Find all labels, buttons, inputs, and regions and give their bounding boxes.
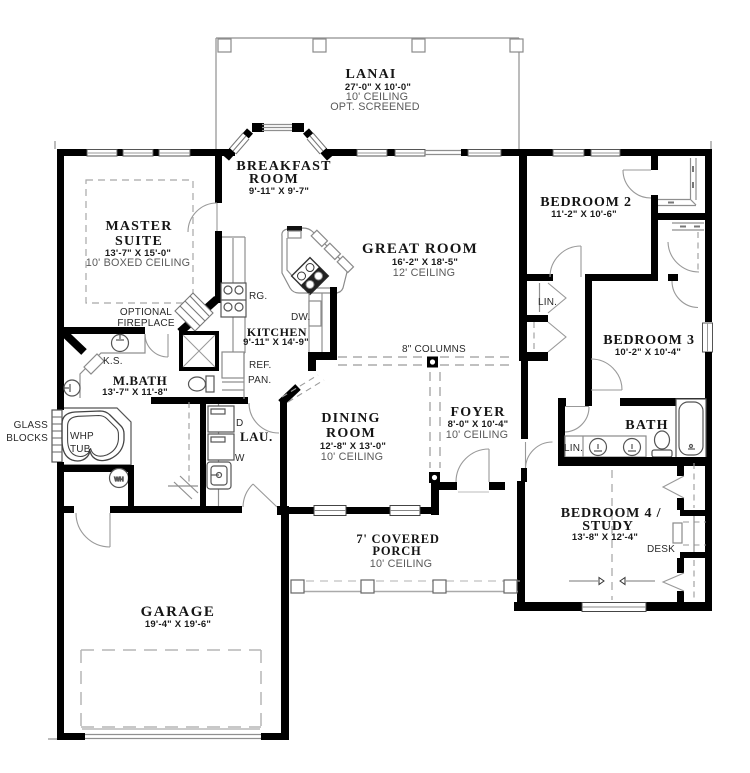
svg-text:LIN.: LIN.: [538, 297, 557, 308]
svg-text:ROOM: ROOM: [326, 426, 376, 441]
svg-text:D: D: [236, 418, 243, 429]
svg-text:GLASS: GLASS: [14, 420, 48, 431]
svg-text:BLOCKS: BLOCKS: [6, 433, 48, 444]
svg-text:13'-7" X 11'-8": 13'-7" X 11'-8": [102, 387, 168, 398]
svg-text:9'-11" X 9'-7": 9'-11" X 9'-7": [249, 186, 309, 197]
svg-text:M.BATH: M.BATH: [113, 373, 167, 388]
svg-text:19'-4" X 19'-6": 19'-4" X 19'-6": [145, 619, 211, 630]
svg-text:PAN.: PAN.: [248, 375, 271, 386]
svg-text:ROOM: ROOM: [249, 172, 299, 187]
svg-text:K.S.: K.S.: [103, 356, 123, 367]
svg-text:SUITE: SUITE: [115, 234, 163, 249]
svg-text:RG.: RG.: [249, 291, 267, 302]
svg-text:13'-8" X 12'-4": 13'-8" X 12'-4": [572, 532, 638, 543]
svg-text:BEDROOM 2: BEDROOM 2: [540, 195, 632, 210]
svg-text:GREAT ROOM: GREAT ROOM: [362, 241, 478, 257]
svg-text:OPT. SCREENED: OPT. SCREENED: [330, 101, 420, 113]
svg-text:BATH: BATH: [625, 418, 668, 433]
svg-text:BEDROOM 3: BEDROOM 3: [603, 333, 695, 348]
svg-text:10' CEILING: 10' CEILING: [370, 558, 432, 570]
svg-text:OPTIONAL: OPTIONAL: [120, 307, 172, 318]
svg-text:12' CEILING: 12' CEILING: [393, 267, 455, 279]
svg-text:LAU.: LAU.: [240, 429, 273, 444]
svg-text:GARAGE: GARAGE: [141, 604, 216, 620]
svg-text:DW.: DW.: [291, 312, 311, 323]
svg-text:10' CEILING: 10' CEILING: [446, 429, 508, 441]
svg-text:FOYER: FOYER: [451, 405, 506, 420]
svg-text:11'-2" X 10'-6": 11'-2" X 10'-6": [551, 209, 617, 220]
svg-text:10'-2" X 10'-4": 10'-2" X 10'-4": [615, 347, 681, 358]
svg-text:10' BOXED CEILING: 10' BOXED CEILING: [86, 257, 190, 269]
svg-text:W: W: [235, 453, 245, 464]
svg-text:LIN.: LIN.: [564, 443, 583, 454]
svg-text:8" COLUMNS: 8" COLUMNS: [402, 344, 466, 355]
svg-text:TUB: TUB: [70, 444, 91, 455]
svg-text:DESK: DESK: [647, 544, 675, 555]
svg-text:REF.: REF.: [249, 360, 271, 371]
svg-text:LANAI: LANAI: [345, 67, 396, 82]
svg-text:PORCH: PORCH: [372, 544, 421, 558]
svg-text:WHP: WHP: [70, 431, 94, 442]
svg-text:FIREPLACE: FIREPLACE: [117, 318, 175, 329]
svg-text:WH: WH: [114, 477, 123, 483]
svg-text:10' CEILING: 10' CEILING: [321, 451, 383, 463]
svg-text:DINING: DINING: [321, 411, 380, 426]
svg-text:9'-11" X 14'-9": 9'-11" X 14'-9": [243, 337, 309, 348]
svg-text:MASTER: MASTER: [105, 219, 172, 234]
